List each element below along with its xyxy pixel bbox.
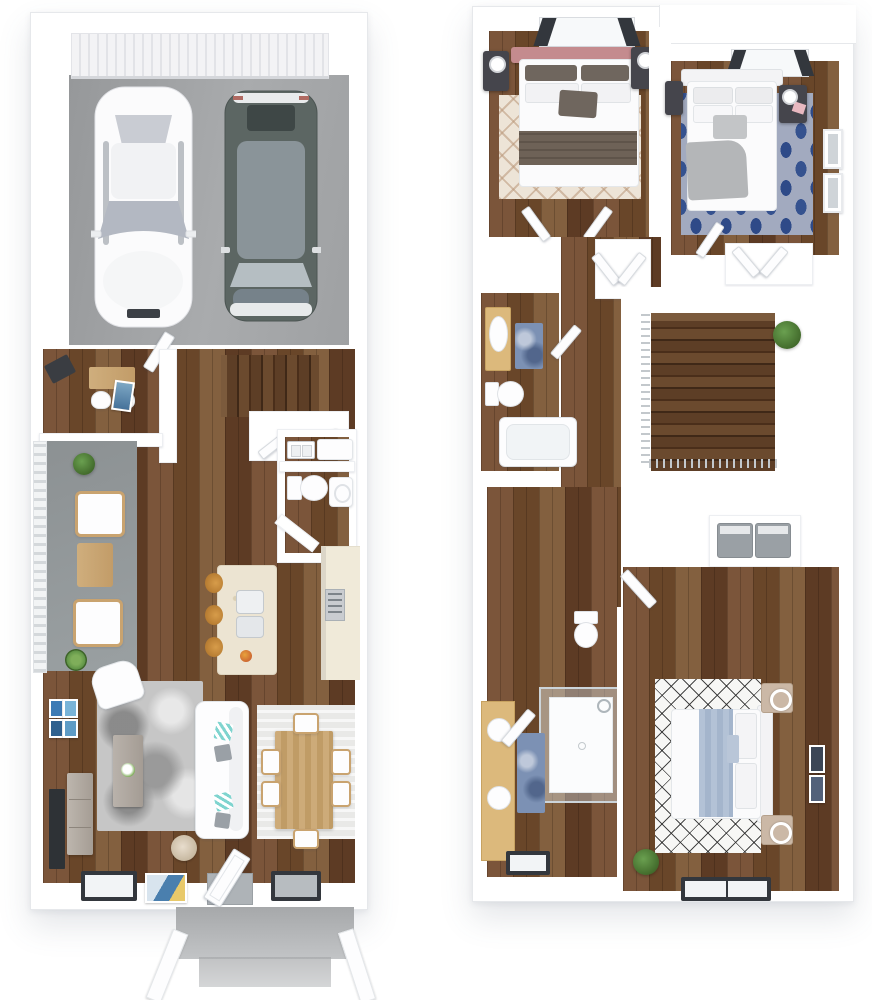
- porch-step: [199, 957, 331, 987]
- gray-throw: [686, 139, 749, 200]
- throw-pillow-teal: [213, 721, 233, 741]
- bedroom2-window: [539, 17, 635, 47]
- flower-vase: [121, 763, 135, 777]
- patio-potted-plant: [73, 453, 95, 475]
- bedroom3-wall-window: [823, 129, 843, 169]
- patio-lounge-chair: [73, 599, 123, 647]
- staircase-up: [221, 355, 319, 417]
- ring-lamp: [770, 822, 792, 844]
- desk-chair: [91, 391, 111, 409]
- porch-rail: [146, 929, 189, 1000]
- nightstand-light: [761, 683, 793, 713]
- blue-runner: [699, 709, 733, 817]
- master-bath-rug: [517, 733, 545, 813]
- front-window: [81, 871, 137, 901]
- dining-chair: [331, 781, 351, 807]
- double-vanity: [481, 701, 515, 861]
- shower-head: [597, 699, 611, 713]
- gray-suv: [221, 87, 321, 325]
- nightstand-light: [761, 815, 793, 845]
- front-porch: [176, 907, 354, 959]
- patio-railing: [33, 441, 47, 673]
- hall-bath-vanity: [485, 307, 511, 371]
- powder-toilet: [287, 475, 327, 499]
- bar-stool: [205, 605, 223, 625]
- ring-lamp: [770, 689, 792, 711]
- gallery-art: [49, 719, 64, 738]
- dining-chair: [293, 829, 319, 849]
- master-bath-window: [506, 851, 550, 875]
- bar-stool: [205, 637, 223, 657]
- stair-railing-chrome: [641, 313, 650, 463]
- nightstand: [483, 51, 509, 91]
- master-bed: [669, 701, 771, 825]
- island-sink: [236, 590, 264, 614]
- nightstand: [665, 81, 683, 115]
- laundry-divider-wall: [279, 461, 355, 472]
- sofa: [195, 701, 247, 837]
- white-sedan: [91, 81, 196, 331]
- blanket-dark: [519, 131, 637, 165]
- gallery-art: [49, 699, 64, 718]
- throw-pillow-gray: [214, 744, 233, 763]
- dining-chair: [293, 713, 319, 734]
- fruit-bowl: [240, 650, 252, 662]
- bar-stool: [205, 573, 223, 593]
- staircase-down: [651, 313, 775, 471]
- porch-rail: [338, 928, 376, 1000]
- dryer: [755, 523, 791, 558]
- dining-chair: [261, 781, 281, 807]
- island-sink: [236, 616, 264, 638]
- utility-sink: [287, 441, 315, 459]
- dining-table: [275, 731, 333, 829]
- door-mat-art: [145, 873, 187, 903]
- footprint-notch: [659, 5, 856, 44]
- kitchen-island: [217, 565, 277, 675]
- master-bath-toilet: [573, 611, 597, 647]
- second-floor-plan: [472, 6, 854, 902]
- hall-bath-toilet: [485, 381, 523, 405]
- master-wall-art: [809, 775, 825, 803]
- coffee-table: [113, 735, 143, 807]
- garage-door: [71, 33, 329, 79]
- master-plant: [633, 849, 659, 875]
- front-window: [271, 871, 321, 901]
- floor-lamp: [171, 835, 197, 861]
- first-floor-plan: [30, 12, 368, 910]
- patio-coffee-table: [77, 543, 113, 587]
- corner-sink: [329, 477, 353, 507]
- throw-pillow-gray: [214, 812, 231, 829]
- washer: [317, 439, 353, 460]
- tv: [49, 789, 65, 869]
- table-lamp: [782, 89, 798, 105]
- glass-shower: [539, 687, 623, 803]
- patio-lounge-chair: [75, 491, 125, 537]
- dining-chair: [331, 749, 351, 775]
- table-lamp: [489, 56, 506, 73]
- vanity-sink: [487, 786, 511, 810]
- spiky-plant: [65, 649, 87, 671]
- bathtub: [499, 417, 577, 467]
- nightstand: [779, 85, 807, 123]
- gallery-art: [63, 719, 78, 738]
- dining-chair: [261, 749, 281, 775]
- hall-bath-rug: [515, 323, 543, 369]
- stair-railing-chrome: [649, 459, 781, 468]
- bedroom3-bed: [685, 69, 777, 211]
- bedroom3-wall-window: [823, 173, 843, 213]
- master-window: [681, 877, 771, 901]
- desk-art-print: [111, 380, 135, 412]
- media-cabinet: [67, 773, 93, 855]
- stairwell-plant: [773, 321, 801, 349]
- bedroom2-bed: [511, 47, 645, 187]
- range-cooktop: [325, 589, 345, 621]
- washer: [717, 523, 753, 558]
- master-wall-art: [809, 745, 825, 773]
- floorplan-canvas: [0, 0, 872, 1000]
- gallery-art: [63, 699, 78, 718]
- bedroom-divider-wall: [649, 27, 671, 243]
